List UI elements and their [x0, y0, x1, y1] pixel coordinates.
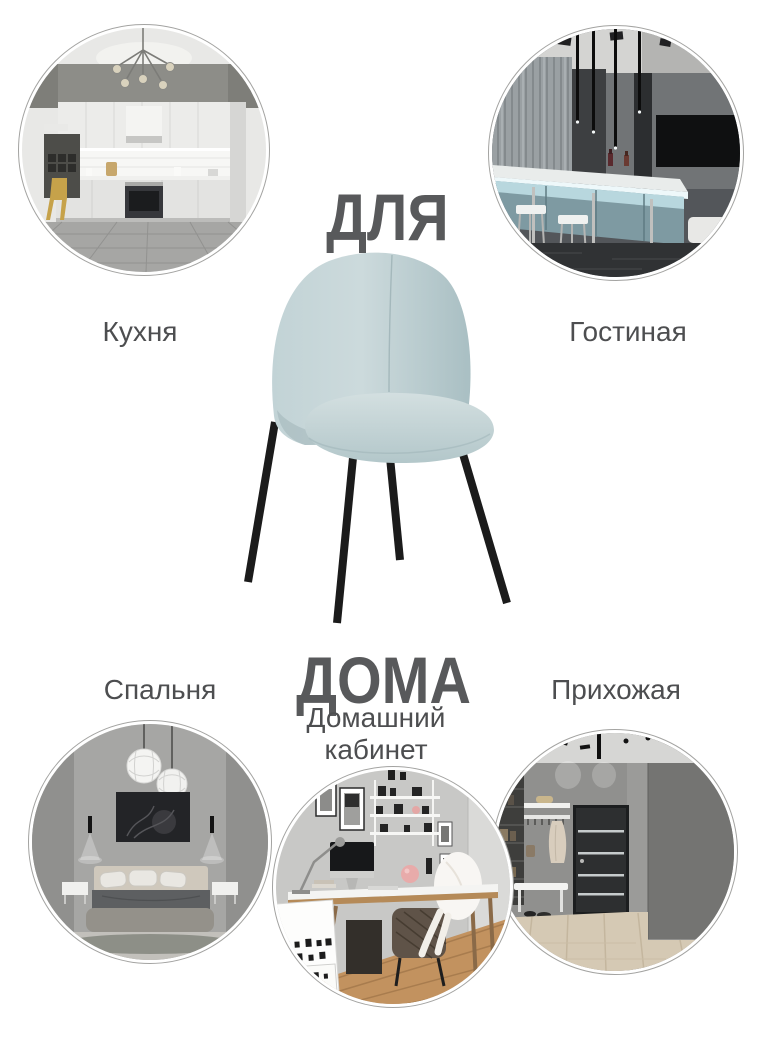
entry-door	[573, 805, 629, 915]
label-bedroom: Спальня	[104, 674, 217, 706]
wall-art	[116, 792, 190, 842]
product-chair-photo	[243, 252, 517, 634]
home-office-photo	[276, 770, 510, 1004]
headline-dlya: ДЛЯ	[237, 184, 537, 250]
white-bench	[688, 217, 740, 243]
home-office-photo-circle	[272, 766, 514, 1008]
label-kitchen: Кухня	[103, 316, 178, 348]
hallway-photo	[496, 733, 734, 971]
bed	[86, 866, 214, 932]
kitchen-photo	[22, 28, 266, 272]
pink-ball	[401, 865, 419, 883]
label-living-room: Гостиная	[569, 316, 687, 348]
label-hallway: Прихожая	[551, 674, 681, 706]
bedroom-photo-circle	[28, 720, 272, 964]
hallway-photo-circle	[492, 729, 738, 975]
kitchen-floor	[22, 222, 266, 272]
leaning-posters	[276, 900, 339, 996]
chair-image	[243, 252, 517, 634]
desk-cabinet	[346, 920, 382, 974]
kitchen-photo-circle	[18, 24, 270, 276]
label-home-office: Домашний кабинет	[286, 702, 466, 766]
tv-screen	[656, 115, 740, 167]
kitchen-oven	[125, 182, 163, 218]
rug	[62, 934, 238, 954]
chair-rooms-infographic: ДЛЯ Кухня Гостиная	[0, 0, 757, 1040]
chair-seat	[305, 393, 494, 463]
bedroom-photo	[32, 724, 268, 960]
